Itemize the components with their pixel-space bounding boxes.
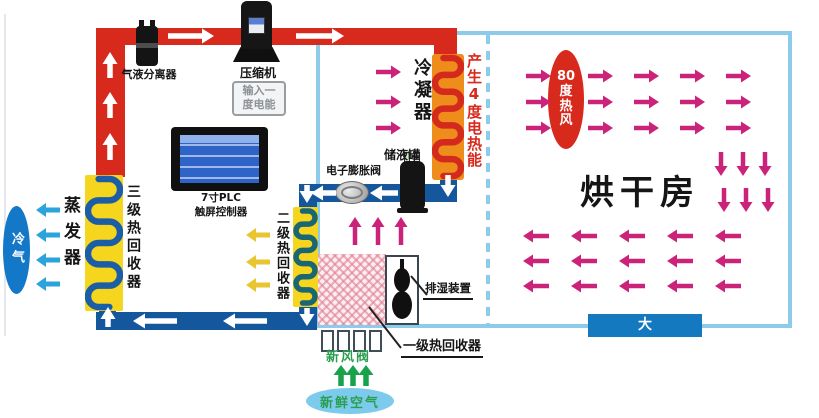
plc-label: 7寸PLC触屏控制器 xyxy=(176,192,266,219)
door-label: 大门 xyxy=(588,314,702,337)
condenser-label: 冷凝器 xyxy=(408,58,434,138)
receiver-label: 储液罐 xyxy=(384,146,420,163)
compressor-base xyxy=(233,47,280,62)
cold-pipe-horizontal xyxy=(299,184,457,202)
hot-pipe-riser xyxy=(96,28,125,177)
compressor-sticker xyxy=(248,17,265,34)
evaporator-stage3-block xyxy=(85,175,123,311)
cold-pipe-drop-to-stage2 xyxy=(299,186,317,208)
separator-label: 气液分离器 xyxy=(118,66,180,82)
heat-pump-dryer-diagram: { "diagram": { "labels": { "separator": … xyxy=(0,0,819,418)
separator-band xyxy=(136,43,158,48)
dehumidifier-label: 排湿装置 xyxy=(423,280,473,300)
fresh-air-valve-label: 新风阀 xyxy=(326,346,371,365)
evaporator-coil xyxy=(85,175,123,311)
receiver-tank-base xyxy=(397,208,428,213)
stage2-recovery-block xyxy=(293,207,318,307)
dehumidifier-fan-box xyxy=(385,255,419,325)
evaporator-label: 蒸发器 xyxy=(58,196,83,288)
dehumidifier-fan-icon xyxy=(387,257,417,323)
machine-room-edge-line xyxy=(4,14,6,336)
stage2-recovery-label: 二级热回收器 xyxy=(272,211,291,309)
stage3-recovery-label: 三级热回收器 xyxy=(123,184,143,310)
receiver-tank xyxy=(400,161,425,211)
cold-pipe-bottom xyxy=(96,312,317,330)
cold-air-badge: 冷气 xyxy=(3,206,30,294)
inner-dashed-partition xyxy=(486,35,490,324)
stage1-heat-recovery-block xyxy=(318,254,386,325)
stage2-coil xyxy=(293,207,318,307)
hot-air-80c-badge: 80度热风 xyxy=(548,50,584,149)
plc-touchscreen xyxy=(180,135,259,183)
condenser-coil xyxy=(432,54,464,180)
condenser-block xyxy=(432,54,464,180)
stage1-recovery-label: 一级热回收器 xyxy=(401,335,483,358)
expansion-valve-label: 电子膨胀阀 xyxy=(326,162,381,178)
compressor-label: 压缩机 xyxy=(230,64,286,81)
drying-room-label: 烘干房 xyxy=(580,165,700,214)
heat-note-label: 产生4度电热能 xyxy=(464,53,485,195)
compressor-input-stamp: 输入一度电能 xyxy=(232,81,286,116)
fresh-air-badge: 新鲜空气 xyxy=(306,388,394,414)
expansion-valve-detail xyxy=(341,186,363,199)
